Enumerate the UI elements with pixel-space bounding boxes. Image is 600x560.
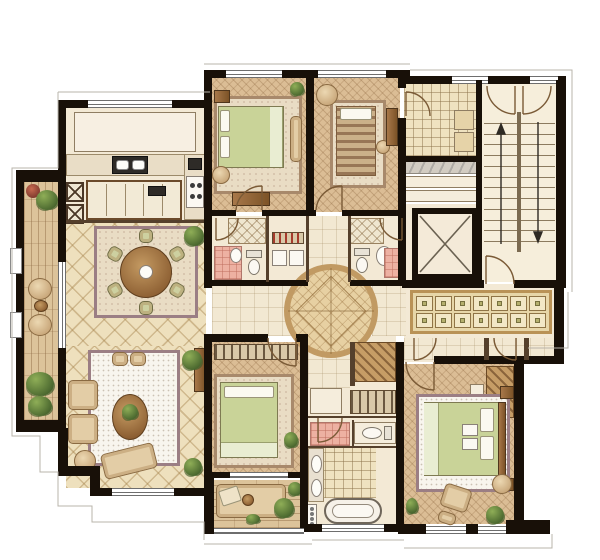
stove <box>186 176 204 208</box>
elevator <box>412 208 478 280</box>
closet-door <box>491 313 508 328</box>
window-master-2 <box>478 526 506 534</box>
wall-mid-center <box>204 216 212 288</box>
washer-1 <box>272 250 287 266</box>
dining-chair <box>168 280 187 299</box>
bedroom1-dresser <box>232 192 270 206</box>
balcony-plant-1 <box>36 190 58 210</box>
bedroom1-nightstand <box>214 90 230 103</box>
stair-tread <box>521 209 555 210</box>
balcony-plant-3 <box>28 396 52 416</box>
stair-flight-right <box>521 112 555 252</box>
master-pillow-2 <box>480 436 494 460</box>
balcony-pilaster <box>10 312 22 338</box>
bedroom4-wardrobe <box>214 344 298 360</box>
island-panel-divider <box>143 184 144 216</box>
bath3-shower <box>350 218 384 244</box>
table-centerpiece <box>139 265 153 279</box>
floor-cushion-2 <box>130 352 146 366</box>
floor-plan <box>0 0 600 560</box>
south-balcony-plant-1 <box>274 498 294 518</box>
wall-stair-east <box>556 80 566 288</box>
island-panel-divider <box>106 184 107 216</box>
bedroom4-plant <box>284 432 298 448</box>
stair-tread <box>484 209 517 210</box>
wall-mbath-west <box>300 342 308 532</box>
stair-tread <box>484 220 517 221</box>
stair-flight-left <box>484 112 517 252</box>
stair-tread <box>484 166 517 167</box>
sink-basin <box>132 160 145 170</box>
closet-door <box>435 313 452 328</box>
master-blanket-stack-1 <box>462 424 478 436</box>
wall-bedroom4-south-a <box>212 472 230 478</box>
dressing-cabinet <box>310 388 342 414</box>
bath3-toilet-tank <box>354 248 370 256</box>
window-kitchen <box>88 100 172 108</box>
wall-bedroom4-south-b <box>288 472 304 478</box>
kitchen-sink <box>112 156 148 174</box>
closet-door <box>416 313 433 328</box>
wall-corridor-south <box>434 356 564 364</box>
bedroom1-plant <box>290 82 304 96</box>
stair-tread <box>521 166 555 167</box>
dining-chair <box>139 301 153 315</box>
window-bedroom1 <box>226 70 282 78</box>
dining-chair <box>139 229 153 243</box>
closet-door <box>529 313 546 328</box>
balcony-pilasters <box>10 248 22 340</box>
stove-burner <box>197 194 202 199</box>
closet-door <box>491 296 508 311</box>
daybed-tray <box>242 494 254 506</box>
entry-step-2 <box>404 190 478 202</box>
sofa-seat-1 <box>68 380 98 410</box>
wall-balcony-east-upper <box>58 176 66 264</box>
kitchen-bay-counter <box>74 112 196 152</box>
mbath-pink-shower <box>310 422 350 446</box>
wall-balcony-east-lower <box>58 348 66 428</box>
microwave <box>188 158 202 170</box>
bedroom2-round-chair <box>316 84 338 106</box>
island-panel-divider <box>125 184 126 216</box>
sofa-seat-2 <box>68 414 98 444</box>
bedroom4-pillow <box>224 386 274 398</box>
wall-mid-upper <box>204 70 212 216</box>
wall-baths-south-a <box>212 280 308 286</box>
west-hall-arm <box>212 286 292 336</box>
island-tray <box>148 186 166 196</box>
stair-tread <box>484 187 517 188</box>
stair-tread <box>521 155 555 156</box>
built-in-closet <box>410 290 552 334</box>
bath2-toilet-tank <box>246 250 262 258</box>
wall-core-west-a <box>398 76 406 88</box>
stair-tread <box>484 177 517 178</box>
stair-tread <box>484 155 517 156</box>
window-master-1 <box>426 526 466 534</box>
stair-tread <box>484 134 517 135</box>
kitchen-dining-divider <box>66 220 206 223</box>
stair-tread <box>521 198 555 199</box>
stair-tread <box>521 187 555 188</box>
closet-door <box>510 313 527 328</box>
bedroom2-cabinet <box>386 108 398 146</box>
stair-tread <box>521 134 555 135</box>
wall-kitchen-left <box>58 100 66 176</box>
x-cabinet-1 <box>66 182 84 202</box>
wall-arm-east <box>350 342 355 386</box>
wall-bed-south-a <box>204 210 236 216</box>
bath3-toilet-bowl <box>356 257 368 273</box>
closet-door <box>454 296 471 311</box>
window-mbath <box>322 524 384 532</box>
dining-chair <box>105 280 124 299</box>
wall-master-east <box>514 360 524 530</box>
kitchen-island <box>86 180 182 220</box>
floor-cushion-1 <box>112 352 128 366</box>
bedroom4-blanket-fold <box>221 442 277 457</box>
wall-bedroom4-top-a <box>204 334 268 342</box>
stair-tread <box>521 144 555 145</box>
bedroom4-sliding-door <box>230 472 288 478</box>
stair-tread <box>521 220 555 221</box>
mbath-grid-floor <box>316 448 376 498</box>
bedroom1-bench <box>290 116 302 162</box>
master-blanket-stack-2 <box>462 438 478 450</box>
wall-mbath-south-b <box>384 524 404 532</box>
living-plant-2 <box>184 458 202 476</box>
mbath-vanity <box>308 448 324 502</box>
stove-burner <box>190 183 195 188</box>
wall-landing-south-a <box>402 280 484 288</box>
master-nightstand-1 <box>500 386 514 399</box>
wall-bed-south-c <box>342 210 404 216</box>
master-blanket-fold <box>424 403 439 475</box>
vanity-sink <box>311 455 322 473</box>
partition-mbath <box>308 446 396 448</box>
mbath-toilet-bowl <box>362 427 382 439</box>
wall-mbath-south-a <box>304 524 322 532</box>
wall-baths-south-b <box>350 280 406 286</box>
living-plant-1 <box>182 350 202 370</box>
closet-door <box>435 296 452 311</box>
bedroom1-pillow-2 <box>220 136 230 158</box>
partition-dressing-bath <box>308 416 396 418</box>
partition-arm-west <box>306 216 309 282</box>
stair-tread <box>484 241 517 242</box>
bedroom2-pillow <box>340 108 372 120</box>
washer-2 <box>289 250 304 266</box>
wall-bed1-bed2 <box>306 76 314 216</box>
entry-step-1 <box>404 176 478 188</box>
window-living <box>112 488 174 496</box>
partition-arm-east <box>348 216 351 282</box>
balcony-chair-2 <box>28 314 52 336</box>
dining-chair <box>168 244 187 263</box>
bedroom1-pillow-1 <box>220 110 230 132</box>
wall-south-balcony-west <box>204 474 214 534</box>
window-bedroom2 <box>318 70 386 78</box>
vanity-sink <box>311 479 322 497</box>
master-plant-1 <box>486 506 504 524</box>
mbath-toilet-tank <box>384 426 392 440</box>
closet-door <box>473 296 490 311</box>
partition-toilet-nook <box>352 420 354 446</box>
wall-master-se-block <box>506 520 550 534</box>
wall-corridor-east <box>554 284 564 364</box>
wall-stair-west <box>476 80 482 286</box>
stair-tread <box>484 198 517 199</box>
dressing-wardrobe-hatch <box>354 342 396 382</box>
stair-tread <box>484 123 517 124</box>
master-headboard <box>498 402 506 476</box>
closet-door <box>473 313 490 328</box>
stair-tread <box>521 177 555 178</box>
multi-room-cabinet-2 <box>454 132 474 152</box>
bath2-shower <box>228 218 266 244</box>
partition-bath2-east <box>266 216 269 282</box>
closet-door <box>454 313 471 328</box>
stair-tread <box>484 144 517 145</box>
balcony-chair-1 <box>28 278 52 300</box>
stove-burner <box>190 194 195 199</box>
sink-basin <box>116 160 129 170</box>
corridor-stub-1 <box>484 338 489 360</box>
stair-tread <box>521 123 555 124</box>
multi-room-cabinet-1 <box>454 110 474 130</box>
bath2-toilet-bowl <box>248 259 260 275</box>
towel-hook <box>310 507 314 511</box>
stove-burner <box>197 183 202 188</box>
balcony-sliding-door <box>58 262 66 350</box>
bathtub <box>324 498 382 524</box>
wall-master-south-b <box>466 524 478 534</box>
window-core-1 <box>452 76 488 84</box>
dressing-hanging-rail <box>350 390 396 414</box>
closet-door <box>529 296 546 311</box>
master-pouf <box>492 474 512 494</box>
stair-tread <box>521 241 555 242</box>
wall-master-west <box>396 342 404 532</box>
dining-plant <box>184 226 204 246</box>
closet-doors <box>416 296 546 328</box>
south-balcony-rail <box>214 528 304 534</box>
bath2-sink <box>230 248 242 263</box>
south-balcony-plant-2 <box>246 514 260 524</box>
master-plant-2 <box>406 498 418 514</box>
bedroom1-blanket-fold <box>270 107 283 167</box>
wall-bedroom4-top-b <box>296 334 308 342</box>
coffee-table-plant <box>122 404 138 420</box>
towel-hook <box>310 512 314 516</box>
balcony-pilaster <box>10 248 22 274</box>
wall-core-west-b <box>398 118 406 282</box>
stair-tread <box>484 230 517 231</box>
window-core-2 <box>530 76 558 84</box>
towel-hook <box>310 517 314 521</box>
closet-door <box>416 296 433 311</box>
closet-door <box>510 296 527 311</box>
stair-tread <box>521 230 555 231</box>
balcony-plant-2 <box>26 372 54 396</box>
utility-shelf-bottles <box>272 232 304 244</box>
corridor-stub-2 <box>524 338 529 360</box>
balcony-table <box>34 300 48 312</box>
bedroom1-chair <box>212 166 230 184</box>
wall-multiroom-bottom <box>404 156 478 162</box>
wall-mid-lower <box>204 342 212 496</box>
master-pillow-1 <box>480 408 494 432</box>
